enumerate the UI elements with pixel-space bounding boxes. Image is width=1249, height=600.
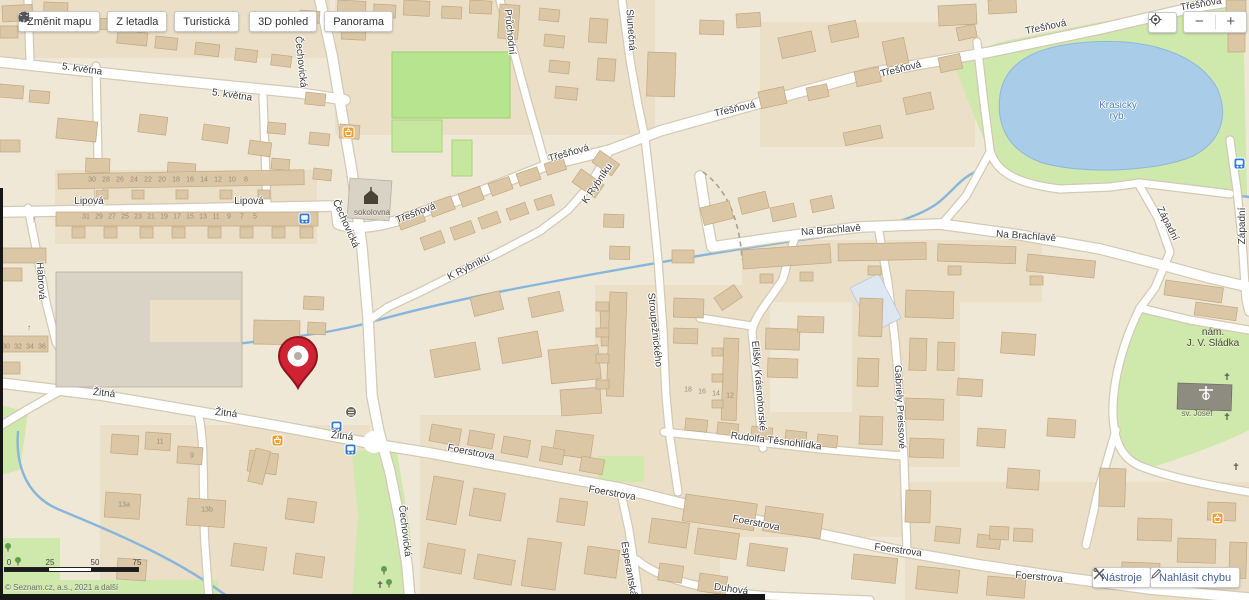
view-3d-button[interactable]: 3D pohled xyxy=(249,11,317,32)
tourist-label: Turistická xyxy=(183,16,230,28)
aerial-label: Z letadla xyxy=(116,16,158,28)
map-canvas[interactable]: 5. května5. květnaLipováLipováČechovická… xyxy=(0,0,1249,600)
bus-stop-icon xyxy=(331,421,342,432)
panorama-icon xyxy=(18,11,30,23)
tools-icon xyxy=(1093,568,1105,580)
locate-button[interactable] xyxy=(1148,12,1177,33)
pub-icon xyxy=(346,407,357,418)
scale-bar-segments xyxy=(4,567,139,572)
shop-icon xyxy=(343,127,354,138)
map-edge-left xyxy=(0,188,3,600)
report-error-button[interactable]: Nahlásit chybu xyxy=(1150,567,1240,588)
bus-stop-icon xyxy=(299,213,310,224)
view-3d-label: 3D pohled xyxy=(258,16,308,28)
pond xyxy=(999,41,1222,170)
scale-tick: 0 xyxy=(7,558,11,567)
zoom-out-button[interactable]: − xyxy=(1184,13,1215,31)
panorama-button[interactable]: Panorama xyxy=(324,11,393,32)
shop-icon xyxy=(272,435,283,446)
tools-label: Nástroje xyxy=(1101,572,1142,584)
panorama-label: Panorama xyxy=(333,16,384,28)
zoom-in-button[interactable]: + xyxy=(1216,13,1247,31)
scale-tick: 50 xyxy=(91,558,100,567)
aerial-button[interactable]: Z letadla xyxy=(107,11,167,32)
toolbar: Změnit mapu Z letadla Turistická 3D pohl… xyxy=(18,11,393,32)
attribution: © Seznam.cz, a.s., 2021 a další xyxy=(5,583,118,592)
scale-tick: 75 xyxy=(133,558,142,567)
locate-icon xyxy=(1149,13,1162,26)
zoom-control: − + xyxy=(1183,11,1247,33)
pencil-icon xyxy=(1151,568,1162,579)
map-edge-bottom xyxy=(0,594,765,600)
scale-tick: 25 xyxy=(46,558,55,567)
tools-button[interactable]: Nástroje xyxy=(1092,567,1151,588)
bus-stop-icon xyxy=(1234,158,1245,169)
tourist-button[interactable]: Turistická xyxy=(174,11,239,32)
report-error-label: Nahlásit chybu xyxy=(1159,572,1231,584)
scale-ticks: 0 25 50 75 xyxy=(4,558,174,567)
map-graphics xyxy=(0,0,1249,600)
cross-icon xyxy=(1234,463,1239,470)
shop-icon xyxy=(1212,513,1223,524)
scale-bar: 0 25 50 75 xyxy=(4,558,174,572)
change-map-label: Změnit mapu xyxy=(27,16,91,28)
bus-stop-icon xyxy=(345,444,356,455)
